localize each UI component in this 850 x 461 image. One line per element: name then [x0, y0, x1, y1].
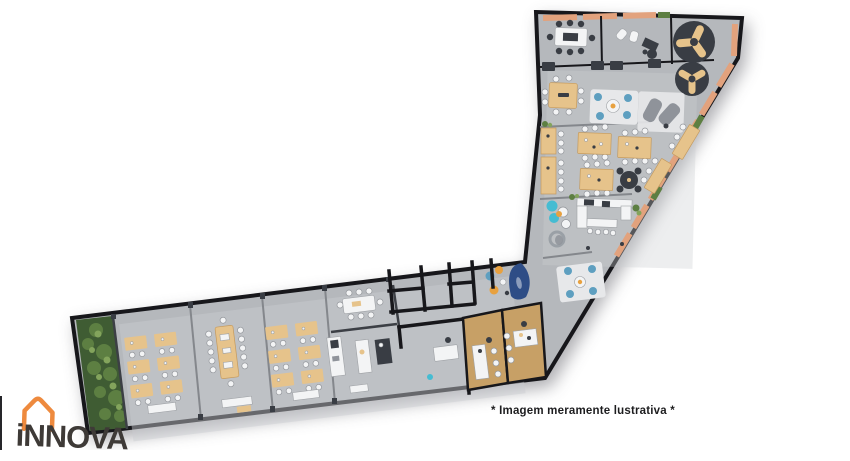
right-wall-bench: [734, 24, 735, 56]
wall-divider-1: [601, 16, 602, 66]
floorplan-render: [0, 0, 850, 450]
illustration-canvas: * Imagem meramente lustrativa * iNNOVA: [0, 0, 850, 450]
lounge-pod-1: [673, 21, 715, 63]
rug-dining-set: [589, 89, 638, 125]
top-wall-bench: [543, 15, 656, 18]
innova-logo-text: iNNOVA: [15, 417, 128, 457]
private-offices: [463, 303, 546, 390]
recliner-loungers: [637, 91, 684, 133]
wall-divider-2: [671, 17, 672, 64]
round-table-dark: [617, 168, 642, 193]
innova-logo: iNNOVA: [3, 395, 175, 461]
rug-dining-set-2: [556, 261, 606, 302]
left-edge-artifact: [0, 396, 2, 450]
caption: * Imagem meramente lustrativa *: [488, 405, 678, 417]
lounge-pod-2: [675, 62, 709, 96]
